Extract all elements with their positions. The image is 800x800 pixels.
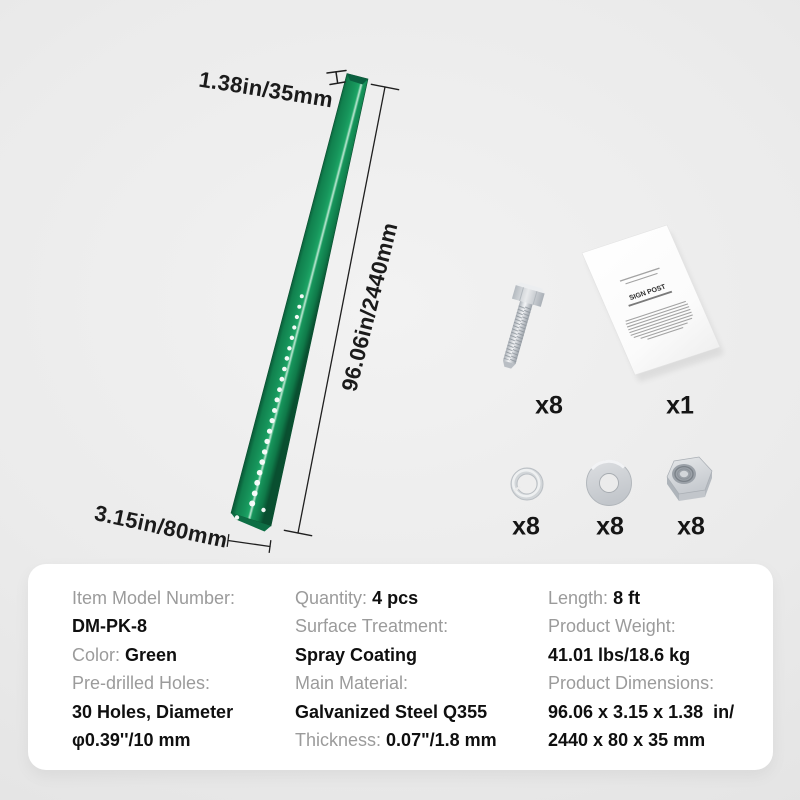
bolt-count-label: x8 (535, 392, 563, 421)
spec-label: Surface Treatment: (295, 616, 448, 636)
specs-panel: Item Model Number: DM-PK-8 Color: Green … (28, 564, 773, 770)
spec-row: Product Weight: (548, 612, 734, 640)
spec-label: Thickness: (295, 730, 381, 750)
spec-value: 30 Holes, Diameter (72, 702, 233, 722)
spec-row: Thickness: 0.07"/1.8 mm (295, 726, 497, 754)
flat-washer-illustration (587, 461, 632, 506)
spec-row: Spray Coating (295, 641, 497, 669)
spec-value: DM-PK-8 (72, 616, 147, 636)
hex-nut-illustration (667, 457, 712, 501)
spec-label: Pre-drilled Holes: (72, 673, 210, 693)
spec-value: Galvanized Steel Q355 (295, 702, 487, 722)
depth-dimension-line (227, 535, 271, 553)
spec-label: Main Material: (295, 673, 408, 693)
spec-row: Length: 8 ft (548, 584, 734, 612)
spec-value: 4 pcs (372, 588, 418, 608)
spring-washer-illustration (511, 468, 543, 500)
spec-label: Quantity: (295, 588, 367, 608)
spec-value: 0.07"/1.8 mm (386, 730, 497, 750)
spec-label: Product Weight: (548, 616, 676, 636)
spec-row: Quantity: 4 pcs (295, 584, 497, 612)
spec-row: φ0.39''/10 mm (72, 726, 235, 754)
flat-washer-count-label: x8 (596, 513, 624, 542)
spec-value: 2440 x 80 x 35 mm (548, 730, 705, 750)
manual-illustration: SIGN POST (582, 225, 724, 382)
spec-row: 41.01 lbs/18.6 kg (548, 641, 734, 669)
spec-row: Galvanized Steel Q355 (295, 698, 497, 726)
bolt-illustration (493, 281, 545, 371)
spec-row: Product Dimensions: (548, 669, 734, 697)
spec-label: Color: (72, 645, 120, 665)
product-infographic: SIGN POST (0, 0, 800, 800)
spec-row: Main Material: (295, 669, 497, 697)
manual-count-label: x1 (666, 392, 694, 421)
spec-value: 41.01 lbs/18.6 kg (548, 645, 690, 665)
sign-post-illustration (231, 74, 368, 532)
hex-nut-count-label: x8 (677, 513, 705, 542)
spec-row: Surface Treatment: (295, 612, 497, 640)
spec-row: Pre-drilled Holes: (72, 669, 235, 697)
specs-column-1: Item Model Number: DM-PK-8 Color: Green … (72, 584, 235, 754)
spec-row: 96.06 x 3.15 x 1.38 in/ (548, 698, 734, 726)
spec-value: φ0.39''/10 mm (72, 730, 191, 750)
spec-label: Product Dimensions: (548, 673, 714, 693)
specs-column-3: Length: 8 ft Product Weight: 41.01 lbs/1… (548, 584, 734, 754)
spec-label: Item Model Number: (72, 588, 235, 608)
spring-washer-count-label: x8 (512, 513, 540, 542)
specs-column-2: Quantity: 4 pcs Surface Treatment: Spray… (295, 584, 497, 754)
spec-value: 8 ft (613, 588, 640, 608)
spec-row: Color: Green (72, 641, 235, 669)
spec-value: 96.06 x 3.15 x 1.38 in/ (548, 702, 734, 722)
spec-row: Item Model Number: (72, 584, 235, 612)
width-dimension-marker (327, 71, 346, 85)
spec-label: Length: (548, 588, 608, 608)
spec-row: 2440 x 80 x 35 mm (548, 726, 734, 754)
spec-value: Green (125, 645, 177, 665)
spec-value: Spray Coating (295, 645, 417, 665)
spec-row: 30 Holes, Diameter (72, 698, 235, 726)
spec-row: DM-PK-8 (72, 612, 235, 640)
